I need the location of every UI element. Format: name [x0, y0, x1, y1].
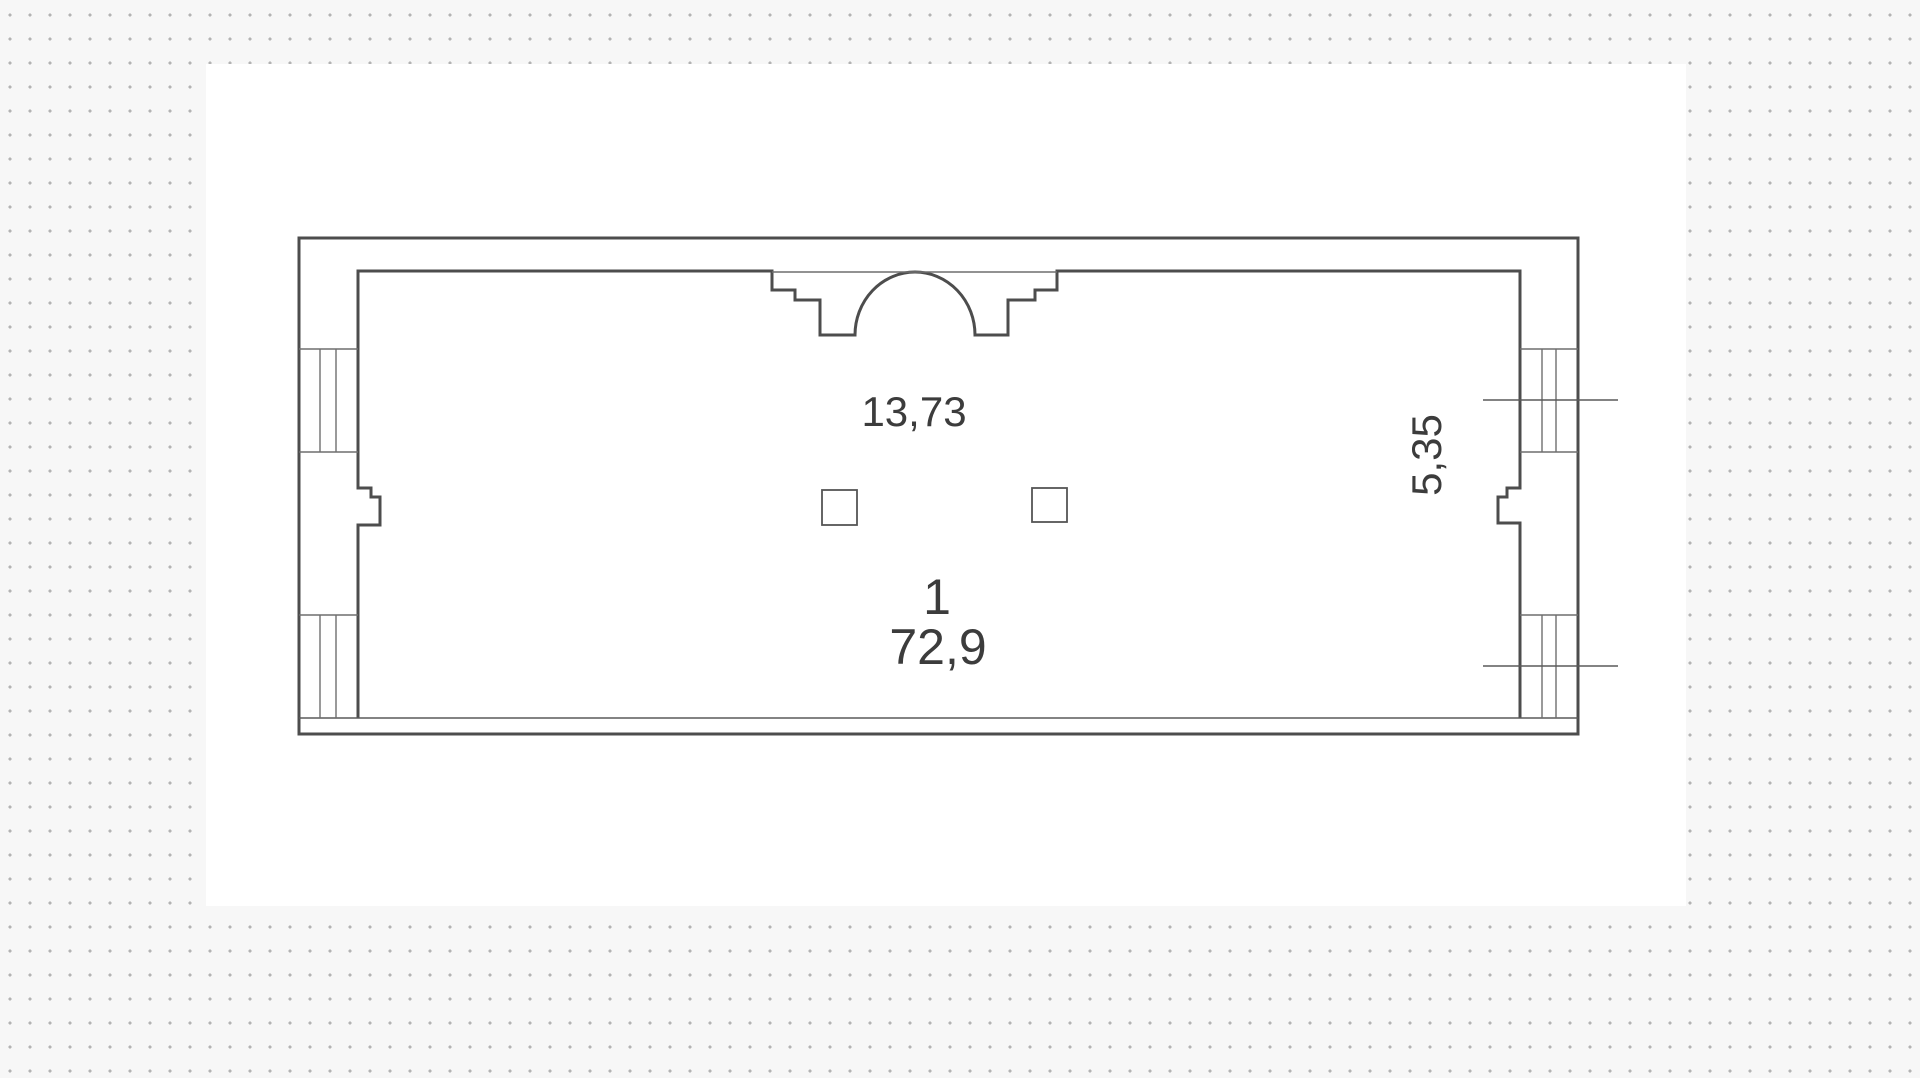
depth-dimension-label: 5,35	[1403, 414, 1451, 496]
room-area-label: 72,9	[889, 618, 986, 676]
width-dimension-label: 13,73	[861, 388, 966, 436]
floor-plan-svg	[0, 0, 1920, 1078]
column-right	[1032, 488, 1067, 522]
left-upper-window	[299, 349, 358, 452]
left-lower-window	[299, 615, 358, 718]
column-left	[822, 490, 857, 525]
